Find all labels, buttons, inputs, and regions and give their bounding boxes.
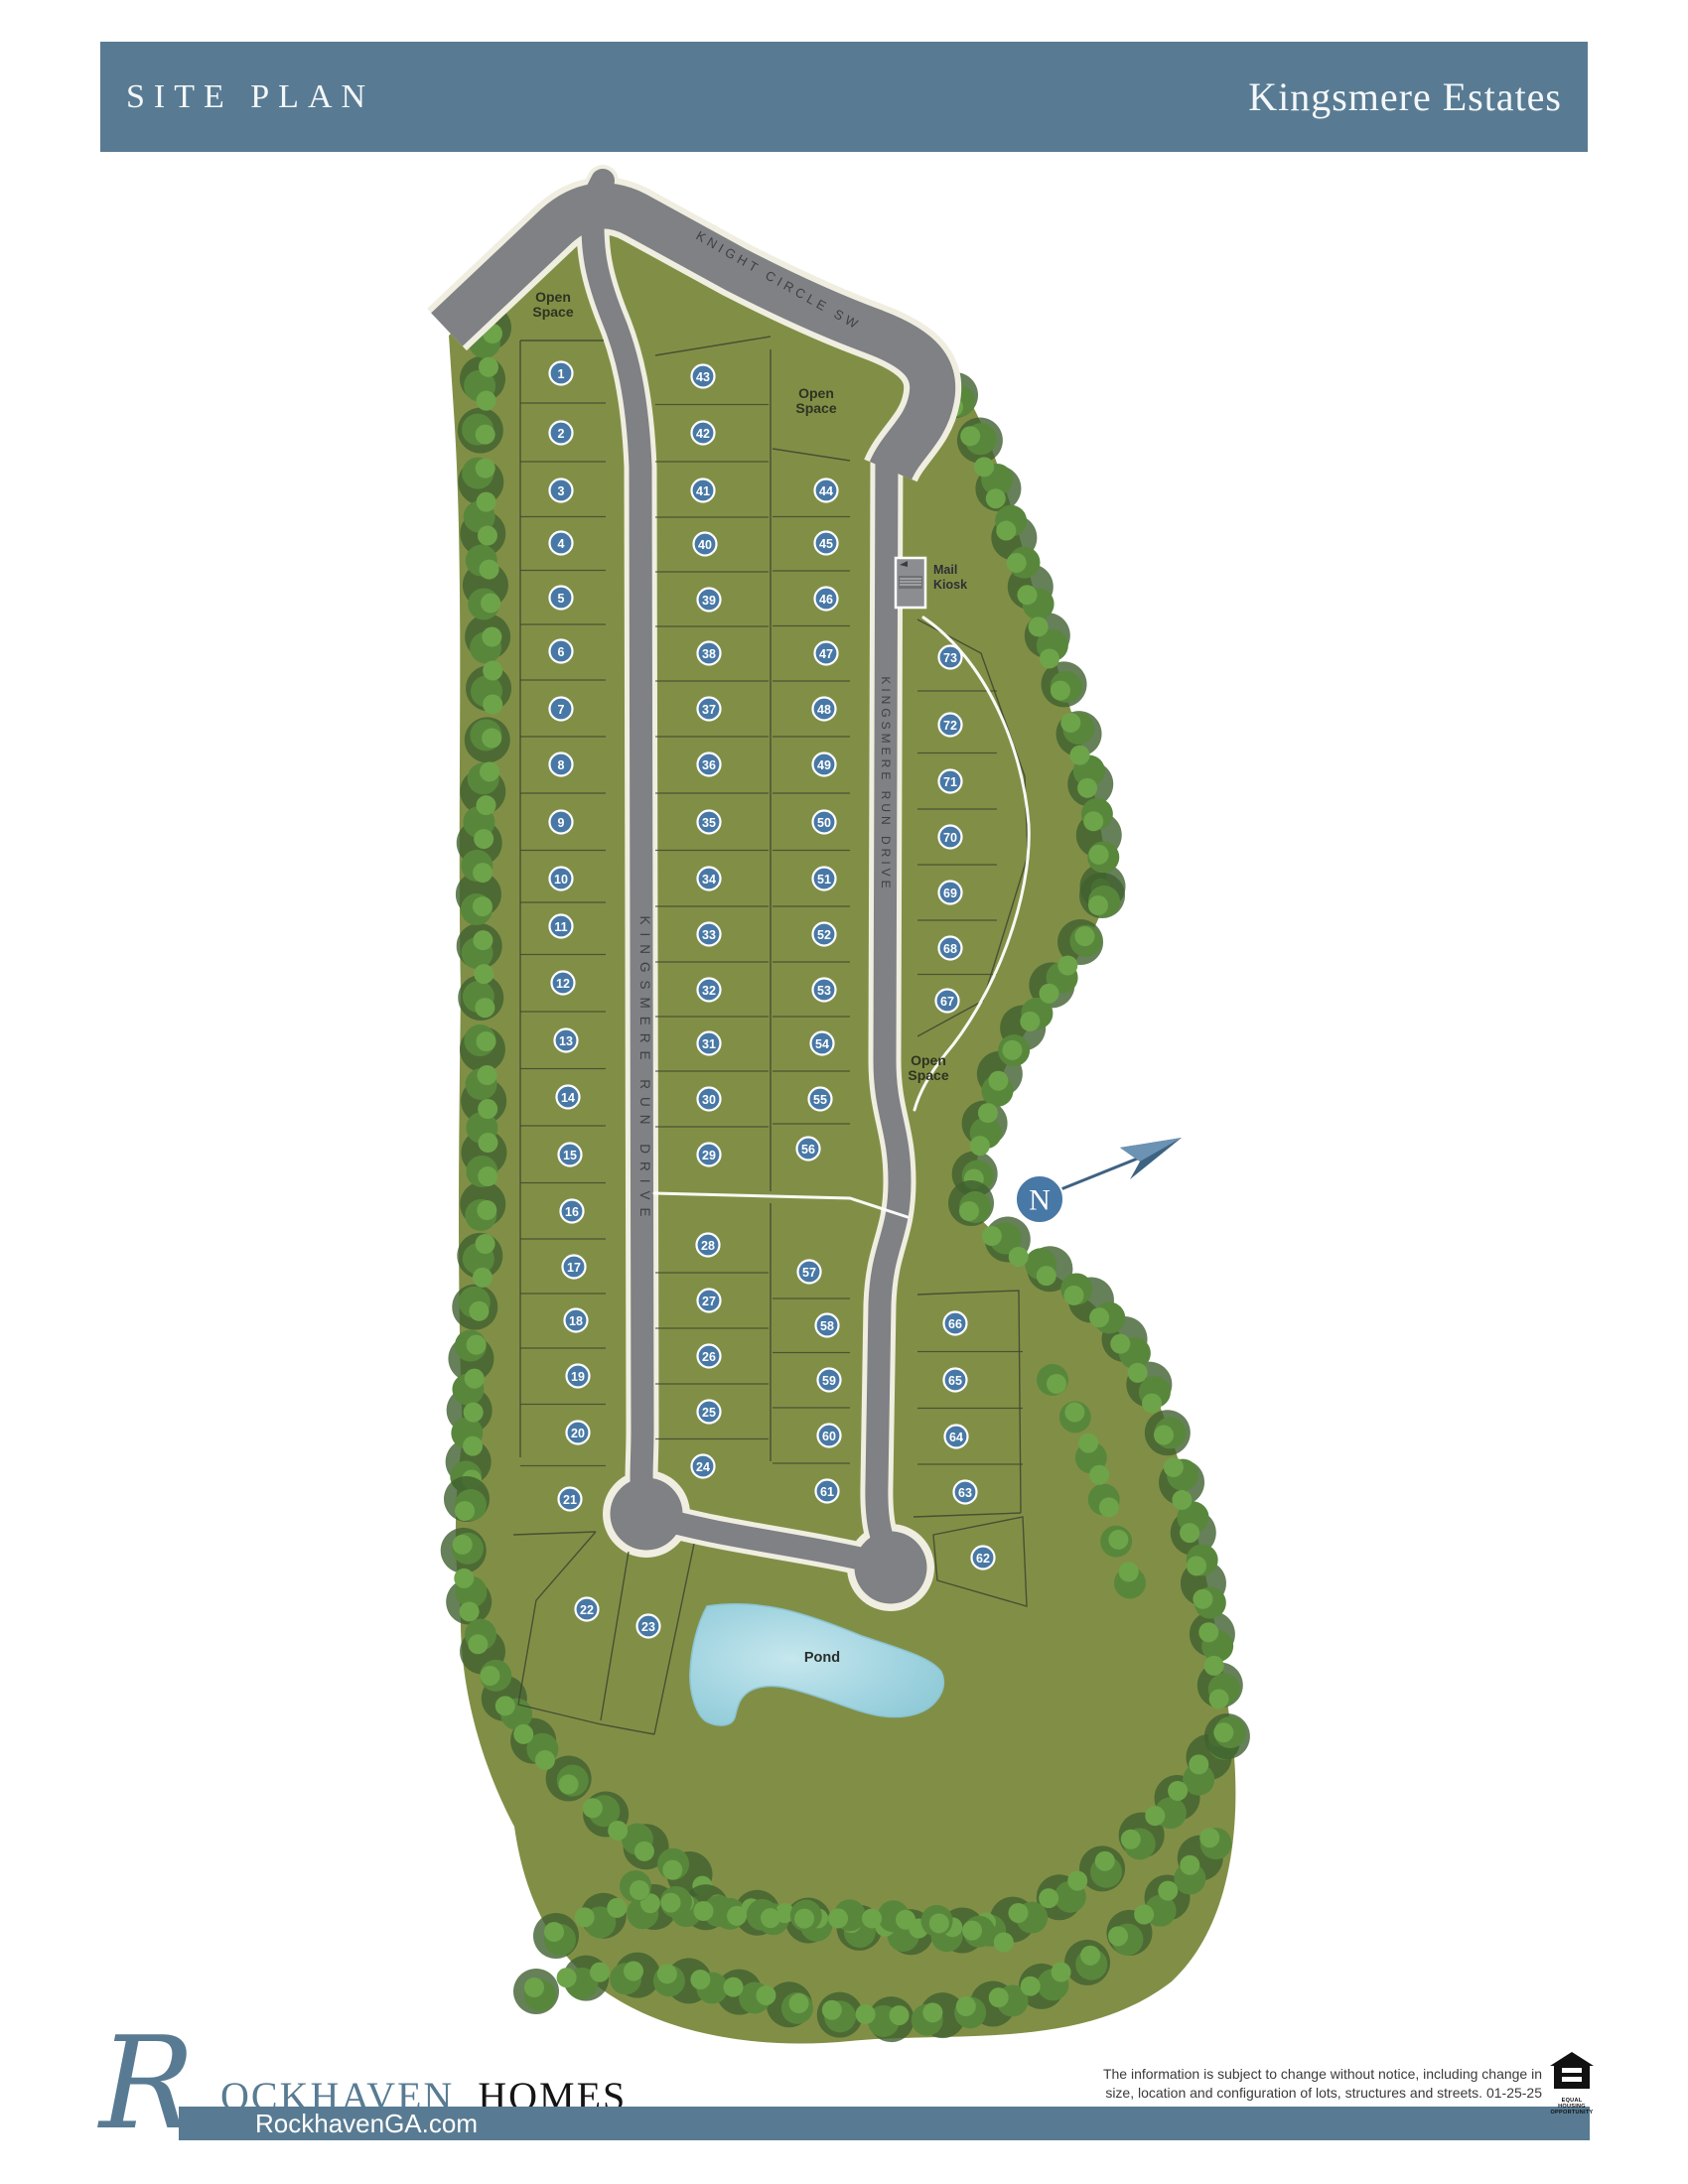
svg-text:65: 65 bbox=[948, 1374, 962, 1388]
svg-text:20: 20 bbox=[571, 1427, 585, 1440]
svg-text:34: 34 bbox=[702, 873, 716, 887]
svg-text:3: 3 bbox=[558, 484, 565, 498]
lot-badge-68: 68 bbox=[939, 937, 962, 960]
svg-text:5: 5 bbox=[558, 592, 565, 606]
lot-badge-65: 65 bbox=[944, 1369, 967, 1392]
svg-text:68: 68 bbox=[943, 942, 957, 956]
svg-text:50: 50 bbox=[817, 816, 831, 830]
lot-badge-31: 31 bbox=[698, 1032, 721, 1055]
lot-badge-29: 29 bbox=[698, 1144, 721, 1166]
svg-text:35: 35 bbox=[702, 816, 716, 830]
lot-badge-35: 35 bbox=[698, 811, 721, 834]
lot-badge-58: 58 bbox=[816, 1314, 839, 1337]
svg-text:72: 72 bbox=[943, 719, 957, 733]
svg-text:62: 62 bbox=[976, 1552, 990, 1566]
open-space-label: OpenSpace bbox=[532, 289, 573, 320]
lot-badge-25: 25 bbox=[698, 1401, 721, 1424]
svg-text:15: 15 bbox=[563, 1149, 577, 1162]
lot-badge-48: 48 bbox=[813, 698, 836, 721]
lot-badge-15: 15 bbox=[559, 1144, 582, 1166]
equal-housing-icon bbox=[1549, 2051, 1595, 2093]
lot-badge-5: 5 bbox=[550, 587, 573, 610]
svg-text:4: 4 bbox=[558, 537, 565, 551]
disclaimer-line2: size, location and configuration of lots… bbox=[894, 2084, 1542, 2103]
svg-text:25: 25 bbox=[702, 1406, 716, 1420]
lot-badge-13: 13 bbox=[555, 1029, 578, 1052]
lot-badge-18: 18 bbox=[565, 1309, 588, 1332]
svg-text:58: 58 bbox=[820, 1319, 834, 1333]
svg-text:16: 16 bbox=[565, 1205, 579, 1219]
svg-text:36: 36 bbox=[702, 758, 716, 772]
lot-badge-62: 62 bbox=[972, 1547, 995, 1570]
lot-badge-45: 45 bbox=[815, 532, 838, 555]
svg-text:14: 14 bbox=[561, 1091, 575, 1105]
lot-badge-4: 4 bbox=[550, 532, 573, 555]
lot-badge-42: 42 bbox=[692, 422, 715, 445]
eho-text-line1: EQUAL HOUSING bbox=[1549, 2098, 1595, 2110]
svg-text:63: 63 bbox=[958, 1486, 972, 1500]
street-label-kingsmere-left: KINGSMERE RUN DRIVE bbox=[637, 915, 652, 1224]
svg-text:7: 7 bbox=[558, 703, 565, 717]
svg-text:43: 43 bbox=[696, 370, 710, 384]
lot-badge-51: 51 bbox=[813, 868, 836, 890]
svg-text:26: 26 bbox=[702, 1350, 716, 1364]
lot-badge-59: 59 bbox=[818, 1369, 841, 1392]
lot-badge-49: 49 bbox=[813, 753, 836, 776]
lot-badge-6: 6 bbox=[550, 640, 573, 663]
lot-badge-11: 11 bbox=[550, 915, 573, 938]
svg-text:29: 29 bbox=[702, 1149, 716, 1162]
svg-text:45: 45 bbox=[819, 537, 833, 551]
lot-badge-34: 34 bbox=[698, 868, 721, 890]
lot-badge-50: 50 bbox=[813, 811, 836, 834]
svg-text:22: 22 bbox=[580, 1603, 594, 1617]
pond-label: Pond bbox=[804, 1650, 840, 1666]
lot-badge-36: 36 bbox=[698, 753, 721, 776]
svg-text:30: 30 bbox=[702, 1093, 716, 1107]
equal-housing-logo: EQUAL HOUSING OPPORTUNITY bbox=[1549, 2051, 1595, 2116]
lot-badge-38: 38 bbox=[698, 642, 721, 665]
svg-text:38: 38 bbox=[702, 647, 716, 661]
svg-text:10: 10 bbox=[554, 873, 568, 887]
svg-text:60: 60 bbox=[822, 1430, 836, 1443]
lot-badge-40: 40 bbox=[694, 533, 717, 556]
open-space-label: OpenSpace bbox=[795, 385, 836, 416]
svg-text:18: 18 bbox=[569, 1314, 583, 1328]
svg-text:21: 21 bbox=[563, 1493, 577, 1507]
svg-text:37: 37 bbox=[702, 703, 716, 717]
svg-text:73: 73 bbox=[943, 651, 957, 665]
svg-text:41: 41 bbox=[696, 484, 710, 498]
svg-text:17: 17 bbox=[567, 1261, 581, 1275]
lot-badge-37: 37 bbox=[698, 698, 721, 721]
svg-text:23: 23 bbox=[641, 1620, 655, 1634]
lot-badge-53: 53 bbox=[813, 979, 836, 1002]
svg-text:27: 27 bbox=[702, 1295, 716, 1308]
lot-badge-39: 39 bbox=[698, 589, 721, 612]
lot-badge-72: 72 bbox=[939, 714, 962, 737]
website-bar: RockhavenGA.com bbox=[179, 2107, 1590, 2140]
svg-text:69: 69 bbox=[943, 887, 957, 900]
svg-text:33: 33 bbox=[702, 928, 716, 942]
lot-badge-10: 10 bbox=[550, 868, 573, 890]
lot-badge-55: 55 bbox=[809, 1088, 832, 1111]
svg-text:46: 46 bbox=[819, 593, 833, 607]
svg-text:32: 32 bbox=[702, 984, 716, 998]
lot-badge-33: 33 bbox=[698, 923, 721, 946]
lot-badge-2: 2 bbox=[550, 422, 573, 445]
lot-badge-24: 24 bbox=[692, 1455, 715, 1478]
lot-badge-7: 7 bbox=[550, 698, 573, 721]
lot-badge-21: 21 bbox=[559, 1488, 582, 1511]
lot-badge-47: 47 bbox=[815, 642, 838, 665]
north-arrow: N bbox=[1016, 1138, 1182, 1223]
svg-text:59: 59 bbox=[822, 1374, 836, 1388]
lot-badge-71: 71 bbox=[939, 770, 962, 793]
svg-text:71: 71 bbox=[943, 775, 957, 789]
svg-text:6: 6 bbox=[558, 645, 565, 659]
lot-badge-43: 43 bbox=[692, 365, 715, 388]
svg-text:28: 28 bbox=[701, 1239, 715, 1253]
lot-badge-27: 27 bbox=[698, 1290, 721, 1312]
website-link[interactable]: RockhavenGA.com bbox=[255, 2109, 478, 2139]
lot-badge-20: 20 bbox=[567, 1422, 590, 1444]
lot-badge-46: 46 bbox=[815, 588, 838, 611]
lot-badge-12: 12 bbox=[552, 972, 575, 995]
svg-text:53: 53 bbox=[817, 984, 831, 998]
svg-text:39: 39 bbox=[702, 594, 716, 608]
lot-badge-23: 23 bbox=[637, 1615, 660, 1638]
lot-badge-32: 32 bbox=[698, 979, 721, 1002]
svg-text:19: 19 bbox=[571, 1370, 585, 1384]
street-label-kingsmere-right: KINGSMERE RUN DRIVE bbox=[879, 676, 893, 891]
lot-badge-57: 57 bbox=[798, 1261, 821, 1284]
lot-badge-8: 8 bbox=[550, 753, 573, 776]
lot-badge-17: 17 bbox=[563, 1256, 586, 1279]
lot-badge-1: 1 bbox=[550, 362, 573, 385]
svg-text:48: 48 bbox=[817, 703, 831, 717]
lot-badge-14: 14 bbox=[557, 1086, 580, 1109]
lot-badge-70: 70 bbox=[939, 826, 962, 849]
svg-text:40: 40 bbox=[698, 538, 712, 552]
north-label: N bbox=[1029, 1184, 1051, 1217]
svg-text:54: 54 bbox=[815, 1037, 829, 1051]
svg-text:42: 42 bbox=[696, 427, 710, 441]
svg-text:70: 70 bbox=[943, 831, 957, 845]
lot-badge-9: 9 bbox=[550, 811, 573, 834]
lot-badge-30: 30 bbox=[698, 1088, 721, 1111]
disclaimer-line1: The information is subject to change wit… bbox=[894, 2065, 1542, 2084]
svg-text:49: 49 bbox=[817, 758, 831, 772]
svg-text:52: 52 bbox=[817, 928, 831, 942]
svg-text:9: 9 bbox=[558, 816, 565, 830]
lot-badge-66: 66 bbox=[944, 1312, 967, 1335]
lot-badge-44: 44 bbox=[815, 479, 838, 502]
svg-text:47: 47 bbox=[819, 647, 833, 661]
svg-text:12: 12 bbox=[556, 977, 570, 991]
svg-text:55: 55 bbox=[813, 1093, 827, 1107]
svg-text:13: 13 bbox=[559, 1034, 573, 1048]
lot-badge-22: 22 bbox=[576, 1598, 599, 1621]
open-space-label: OpenSpace bbox=[908, 1052, 948, 1083]
lot-badge-26: 26 bbox=[698, 1345, 721, 1368]
lot-badge-60: 60 bbox=[818, 1425, 841, 1447]
lot-badge-28: 28 bbox=[697, 1234, 720, 1257]
mail-kiosk-icon bbox=[896, 558, 925, 608]
lot-badge-19: 19 bbox=[567, 1365, 590, 1388]
svg-text:44: 44 bbox=[819, 484, 833, 498]
site-plan-page: SITE PLAN Kingsmere Estates bbox=[0, 0, 1688, 2184]
eho-text-line2: OPPORTUNITY bbox=[1549, 2110, 1595, 2116]
svg-text:51: 51 bbox=[817, 873, 831, 887]
lot-badge-67: 67 bbox=[936, 990, 959, 1013]
svg-text:67: 67 bbox=[940, 995, 954, 1009]
lot-badge-73: 73 bbox=[939, 646, 962, 669]
lot-badge-54: 54 bbox=[811, 1032, 834, 1055]
lot-badge-61: 61 bbox=[816, 1480, 839, 1503]
svg-text:8: 8 bbox=[558, 758, 565, 772]
svg-text:64: 64 bbox=[949, 1431, 963, 1444]
lot-badge-64: 64 bbox=[945, 1426, 968, 1448]
svg-text:2: 2 bbox=[558, 427, 565, 441]
lot-badge-41: 41 bbox=[692, 479, 715, 502]
svg-text:57: 57 bbox=[802, 1266, 816, 1280]
svg-text:66: 66 bbox=[948, 1317, 962, 1331]
site-plan-map: KNIGHT CIRCLE SW KINGSMERE RUN DRIVE KIN… bbox=[0, 0, 1688, 2184]
disclaimer: The information is subject to change wit… bbox=[894, 2065, 1542, 2103]
svg-text:11: 11 bbox=[554, 920, 567, 934]
svg-text:61: 61 bbox=[820, 1485, 834, 1499]
lot-badge-52: 52 bbox=[813, 923, 836, 946]
svg-text:24: 24 bbox=[696, 1460, 710, 1474]
lot-badge-56: 56 bbox=[797, 1138, 820, 1160]
lot-badge-16: 16 bbox=[561, 1200, 584, 1223]
svg-text:56: 56 bbox=[801, 1143, 815, 1157]
lot-badge-63: 63 bbox=[954, 1481, 977, 1504]
svg-text:1: 1 bbox=[558, 367, 565, 381]
svg-text:31: 31 bbox=[702, 1037, 716, 1051]
lot-badge-69: 69 bbox=[939, 882, 962, 904]
lot-badge-3: 3 bbox=[550, 479, 573, 502]
